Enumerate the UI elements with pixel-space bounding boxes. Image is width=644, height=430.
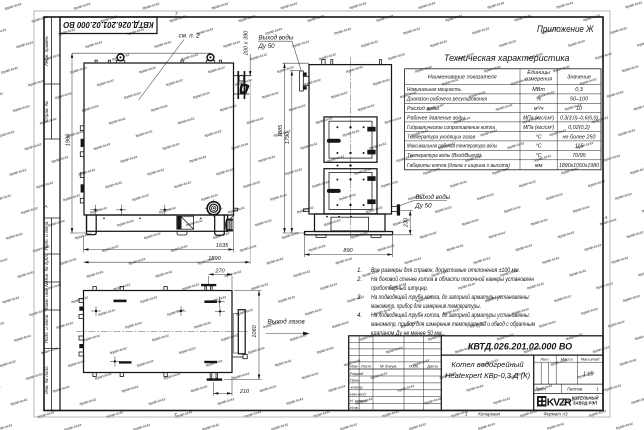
svg-text:На боковой стенке котла в обла: На боковой стенке котла в области топочн… [371, 276, 534, 283]
svg-text:Инв. № дубл.: Инв. № дубл. [44, 254, 49, 282]
svg-text:70/95: 70/95 [572, 153, 586, 159]
svg-text:Лист: Лист [360, 363, 372, 368]
svg-text:7: 7 [174, 412, 177, 417]
svg-text:115: 115 [575, 144, 585, 150]
svg-text:Температура уходящих газов: Температура уходящих газов [407, 134, 475, 140]
svg-text:4.: 4. [357, 312, 362, 319]
svg-text:210: 210 [239, 389, 250, 395]
svg-text:°С: °С [536, 144, 542, 150]
svg-text:не более 250: не более 250 [563, 134, 596, 140]
svg-text:Лит.: Лит. [539, 357, 549, 362]
svg-text:Пров.: Пров. [350, 378, 361, 383]
svg-text:°С: °С [536, 153, 542, 159]
svg-text:Подп. и дата: Подп. и дата [44, 314, 49, 343]
svg-text:Габариты котла (длина х ширина: Габариты котла (длина х ширина х высота) [407, 163, 510, 169]
svg-text:МПа (кгс/см²): МПа (кгс/см²) [523, 125, 554, 131]
svg-text:Выход воды: Выход воды [415, 194, 450, 201]
svg-text:1890х1060х1980: 1890х1060х1980 [559, 163, 599, 169]
svg-text:Выход газов: Выход газов [268, 318, 306, 326]
svg-text:%: % [536, 97, 541, 103]
svg-text:Подп.: Подп. [409, 363, 420, 368]
svg-text:Heatexpert КВр-0,3 Д (К): Heatexpert КВр-0,3 Д (К) [445, 371, 531, 380]
svg-text:0,3: 0,3 [575, 87, 583, 93]
svg-text:10: 10 [576, 106, 582, 112]
svg-text:Изм: Изм [350, 363, 358, 368]
svg-text:Максимальная рабочая температу: Максимальная рабочая температура воды [407, 144, 497, 150]
svg-text:Единицы: Единицы [527, 70, 550, 76]
svg-text:Гидравлическое сопротивление к: Гидравлическое сопротивление котла [407, 125, 495, 131]
svg-text:м³/ч: м³/ч [534, 106, 544, 112]
svg-text:Расход воды: Расход воды [407, 106, 439, 112]
svg-text:Справ. №: Справ. № [44, 101, 49, 122]
svg-text:Выход воды: Выход воды [259, 35, 294, 42]
svg-text:2.: 2. [356, 276, 362, 283]
svg-text:Листов: Листов [566, 387, 583, 392]
svg-text:Рабочее давление воды: Рабочее давление воды [407, 115, 465, 121]
svg-text:Ду 50: Ду 50 [414, 203, 432, 210]
svg-text:Диапазон рабочего регулировани: Диапазон рабочего регулирования [406, 97, 487, 103]
svg-text:Масштаб: Масштаб [581, 357, 600, 362]
svg-text:измерения: измерения [525, 77, 552, 83]
svg-text:МВт: МВт [532, 87, 545, 93]
svg-text:манометр, прибор для измерения: манометр, прибор для измерения температу… [371, 303, 481, 310]
svg-text:манометр, прибор для измерения: манометр, прибор для измерения температу… [371, 321, 536, 328]
svg-text:Копировал: Копировал [478, 411, 500, 416]
svg-text:1890: 1890 [208, 256, 221, 262]
svg-text:270: 270 [214, 268, 225, 274]
svg-text:Котел водогрейный: Котел водогрейный [451, 360, 524, 369]
svg-text:Приложение Ж: Приложение Ж [537, 24, 594, 34]
svg-text:см. п. 2: см. п. 2 [179, 33, 201, 40]
svg-text:1790: 1790 [285, 131, 291, 144]
svg-text:Ду 50: Ду 50 [258, 43, 276, 50]
svg-text:7: 7 [175, 12, 178, 17]
svg-text:0,02(0,2): 0,02(0,2) [568, 125, 590, 131]
svg-text:230: 230 [404, 217, 410, 228]
svg-text:1980: 1980 [66, 133, 72, 146]
svg-text:На подводящей трубе котла, до: На подводящей трубе котла, до запорной а… [371, 294, 530, 301]
svg-text:контр.: контр. [351, 385, 364, 390]
svg-text:Инв. № подл.: Инв. № подл. [44, 365, 49, 394]
svg-text:0,3(3,0)–0,6(6,0): 0,3(3,0)–0,6(6,0) [560, 115, 598, 121]
svg-text:890: 890 [343, 248, 353, 254]
svg-text:№ докум.: № докум. [380, 363, 398, 368]
svg-text:Подп. и дата: Подп. и дата [44, 221, 49, 250]
svg-text:Н. контр.: Н. контр. [350, 398, 368, 403]
svg-text:Лист: Лист [534, 387, 546, 392]
svg-text:Нач.отд.: Нач.отд. [350, 391, 367, 396]
svg-text:ЗАВОД РЭП: ЗАВОД РЭП [573, 401, 598, 406]
svg-text:мм: мм [535, 163, 543, 169]
svg-text:Перв. примен.: Перв. примен. [44, 35, 49, 66]
svg-text:МПа (кгс/см²): МПа (кгс/см²) [523, 115, 554, 121]
svg-text:KVZR: KVZR [547, 397, 572, 408]
svg-text:200 х 390: 200 х 390 [244, 30, 250, 56]
svg-text:Формат А3: Формат А3 [544, 411, 569, 416]
svg-text:°С: °С [536, 134, 542, 140]
svg-text:Температура воды (Вход/Выход): Температура воды (Вход/Выход) [407, 153, 481, 159]
svg-text:1885: 1885 [278, 124, 284, 137]
svg-text:1635: 1635 [216, 243, 229, 249]
svg-text:1060: 1060 [252, 324, 258, 337]
svg-text:На подводящей трубе котла, до: На подводящей трубе котла, до запорной а… [371, 312, 530, 319]
svg-text:Значение: Значение [567, 75, 591, 81]
svg-text:Дата: Дата [426, 363, 438, 368]
svg-text:А: А [44, 204, 48, 209]
svg-text:Наименование показателя: Наименование показателя [428, 75, 497, 81]
svg-text:1: 1 [596, 387, 598, 392]
svg-text:50–100: 50–100 [570, 97, 588, 103]
svg-text:КОТЕЛЬНЫЙ: КОТЕЛЬНЫЙ [572, 395, 600, 400]
svg-text:КВТД.026.201.02.000 ВО: КВТД.026.201.02.000 ВО [63, 20, 153, 29]
svg-text:3.: 3. [357, 294, 362, 301]
svg-text:1.: 1. [357, 267, 362, 274]
svg-text:А: А [604, 215, 608, 220]
svg-text:Техническая характеристика: Техническая характеристика [444, 53, 570, 63]
svg-text:Разраб.: Разраб. [350, 371, 364, 376]
svg-text:Утв.: Утв. [350, 405, 359, 410]
svg-text:Все размеры для справок, допус: Все размеры для справок, допустимые откл… [371, 267, 520, 274]
svg-text:Номинальная мощность: Номинальная мощность [407, 87, 461, 93]
svg-text:КВТД.026.201.02.000 ВО: КВТД.026.201.02.000 ВО [468, 342, 572, 352]
svg-text:проботборный штуцер.: проботборный штуцер. [371, 285, 428, 292]
svg-text:1:15: 1:15 [583, 372, 593, 378]
svg-text:Масса: Масса [561, 357, 574, 362]
svg-text:Взам. инв. №: Взам. инв. № [44, 282, 49, 310]
